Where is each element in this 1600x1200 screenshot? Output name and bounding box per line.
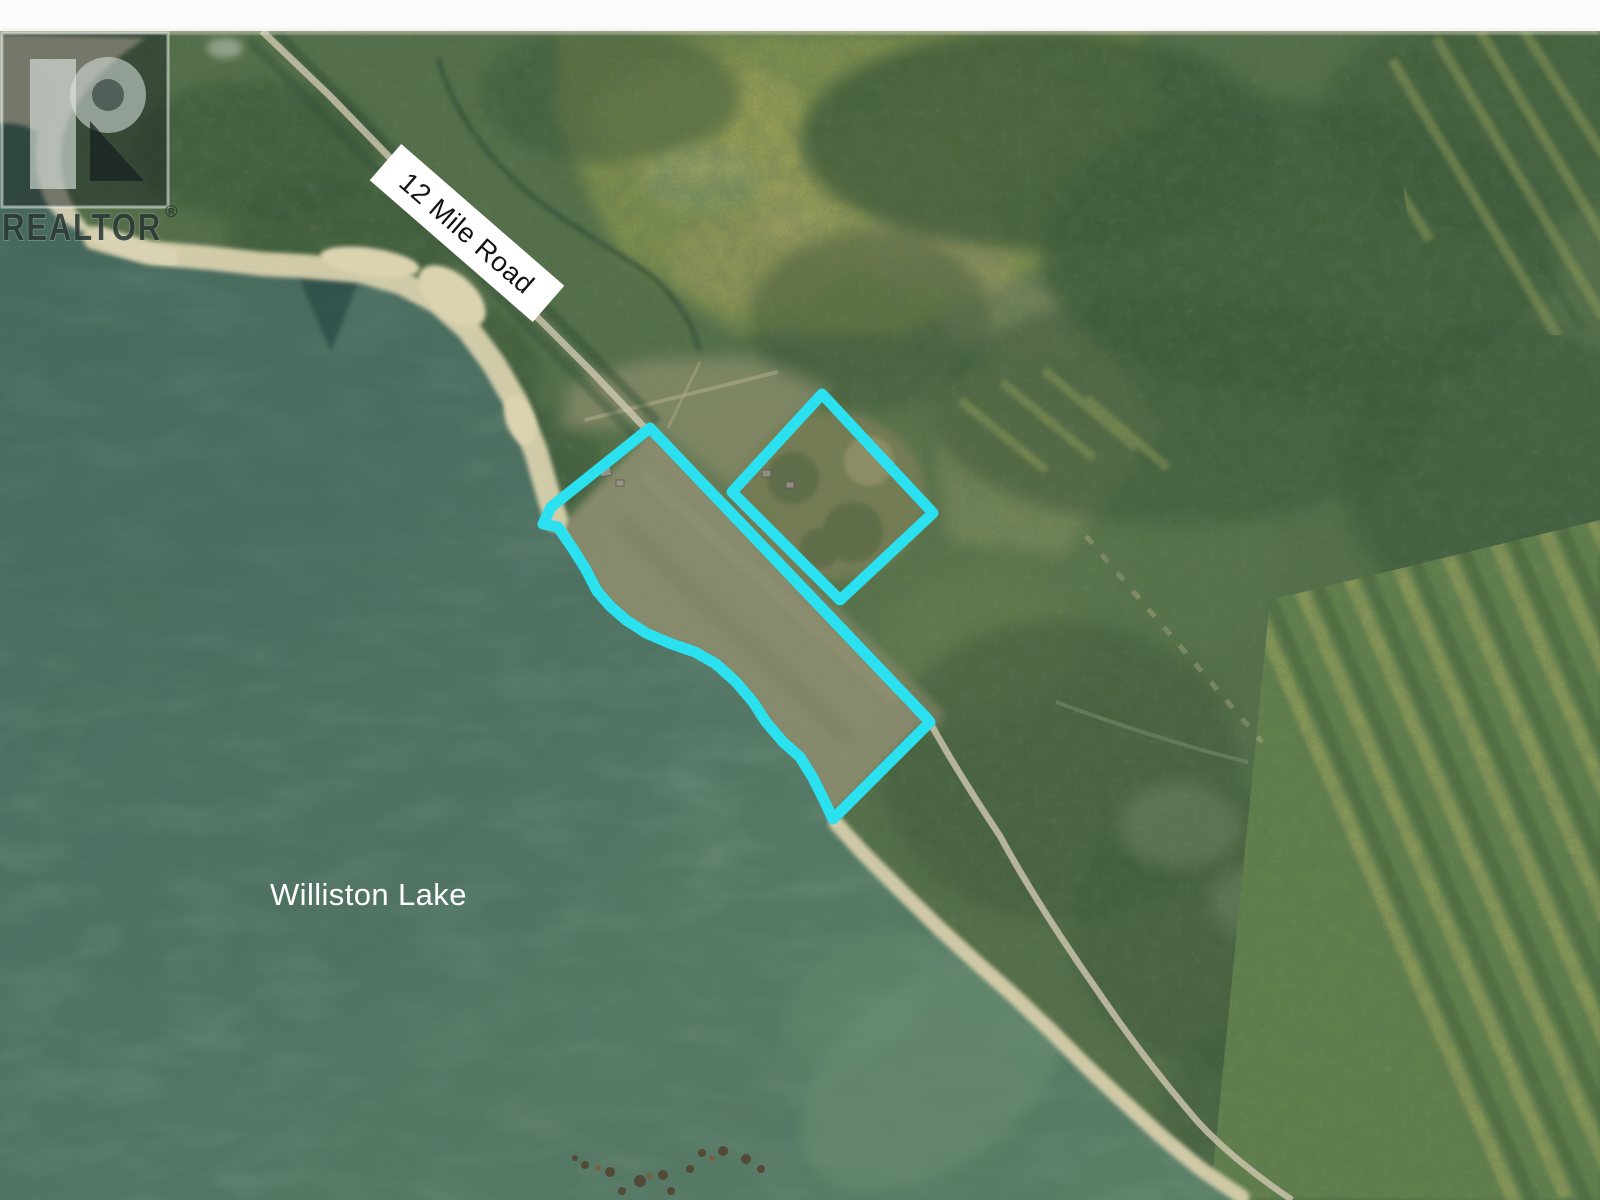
realtor-registered-mark: ® bbox=[165, 202, 178, 221]
realtor-wordmark: REALTOR bbox=[2, 207, 162, 249]
lake-name-label: Williston Lake bbox=[270, 877, 467, 912]
satellite-map-image: 12 Mile Road Williston Lake REALTOR ® bbox=[0, 0, 1600, 1200]
listing-map-page: 12 Mile Road Williston Lake REALTOR ® bbox=[0, 0, 1600, 1200]
realtor-logo: REALTOR ® bbox=[2, 33, 178, 249]
top-banner bbox=[0, 0, 1600, 34]
